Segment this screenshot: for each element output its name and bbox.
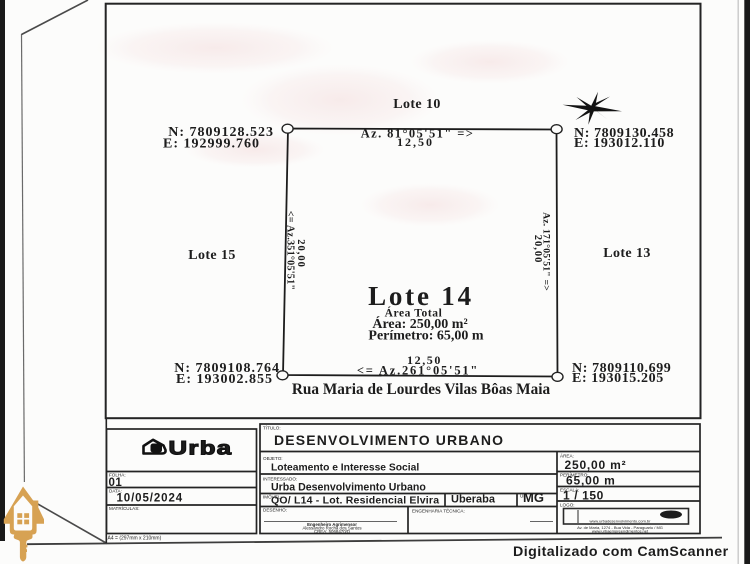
svg-text:QO/ L14 - Lot. Residencial Elv: QO/ L14 - Lot. Residencial Elvira [271,495,439,507]
svg-text:E: 193002.855: E: 193002.855 [176,372,273,387]
svg-text:E: 193015.205: E: 193015.205 [572,371,664,386]
svg-text:E: 192999.760: E: 192999.760 [163,137,260,152]
svg-text:Perímetro: 65,00 m: Perímetro: 65,00 m [368,329,484,344]
svg-text:20,00: 20,00 [295,239,306,268]
svg-text:10/05/2024: 10/05/2024 [117,493,184,505]
svg-text:<= Az.351°05'51": <= Az.351°05'51" [285,211,296,290]
svg-text:Lote 10: Lote 10 [393,97,441,112]
svg-text:Digitalizado com CamScanner: Digitalizado com CamScanner [513,544,729,560]
svg-text:MG: MG [523,490,544,505]
svg-text:<= Az.261°05'51": <= Az.261°05'51" [357,364,479,378]
svg-text:OBJETO:: OBJETO: [263,456,283,461]
svg-text:A4 = (297mm x 210mm): A4 = (297mm x 210mm) [108,536,162,542]
svg-text:12,50: 12,50 [397,135,434,149]
svg-text:65,00 m: 65,00 m [566,474,616,488]
svg-text:Urba: Urba [169,437,233,459]
svg-text:01: 01 [109,477,123,489]
svg-text:DESENHO:: DESENHO: [263,508,287,513]
svg-text:MATRÍCULAS:: MATRÍCULAS: [109,505,140,511]
svg-text:Lote 13: Lote 13 [603,246,651,261]
svg-text:Urba Desenvolvimento Urbano: Urba Desenvolvimento Urbano [271,482,426,494]
svg-text:www.urbadesenvolvimento.com.br: www.urbadesenvolvimento.com.br [590,519,652,524]
svg-text:Uberaba: Uberaba [451,494,496,506]
svg-text:DESENVOLVIMENTO URBANO: DESENVOLVIMENTO URBANO [274,432,504,448]
svg-text:E: 193012.110: E: 193012.110 [574,136,665,151]
svg-text:Lote 15: Lote 15 [188,248,236,263]
svg-text:www.urbaempreendimentos.net: www.urbaempreendimentos.net [592,529,649,534]
svg-text:Loteamento e Interesse Social: Loteamento e Interesse Social [271,463,419,474]
svg-text:ENGENHARIA TÉCNICA:: ENGENHARIA TÉCNICA: [412,508,465,514]
svg-text:Lote 14: Lote 14 [368,281,474,311]
svg-text:LOGO:: LOGO: [560,503,575,508]
svg-text:250,00 m²: 250,00 m² [565,458,627,472]
svg-text:Rua Maria de Lourdes Vilas Bôa: Rua Maria de Lourdes Vilas Bôas Maia [292,381,551,398]
svg-text:20,00: 20,00 [532,235,543,264]
svg-text:1 / 150: 1 / 150 [563,489,604,503]
svg-text:TÍTULO:: TÍTULO: [263,425,281,431]
svg-text:CREA: 5068470/D: CREA: 5068470/D [314,529,350,534]
